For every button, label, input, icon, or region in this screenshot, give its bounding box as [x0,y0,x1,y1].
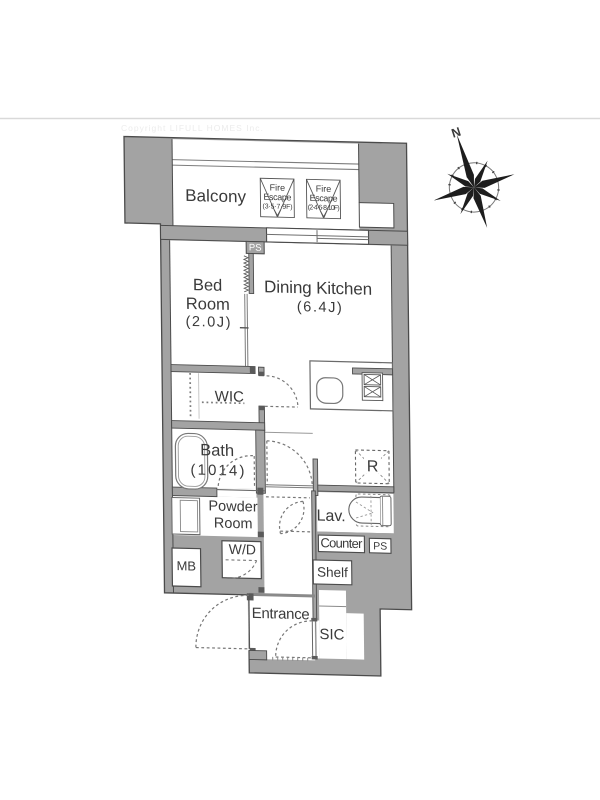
svg-text:Balcony: Balcony [185,186,247,206]
svg-text:(3·5·7·9F): (3·5·7·9F) [263,203,293,211]
svg-text:Room: Room [186,295,230,314]
svg-text:(6.4J): (6.4J) [297,299,342,316]
svg-text:Copyright LIFULL HOMES Inc.: Copyright LIFULL HOMES Inc. [121,123,264,133]
svg-text:N: N [450,125,463,141]
svg-text:MB: MB [176,558,196,573]
svg-text:WIC: WIC [215,388,245,406]
svg-text:Room: Room [214,516,253,533]
svg-text:Dining Kitchen: Dining Kitchen [264,277,372,299]
svg-text:Powder: Powder [208,498,258,515]
svg-text:W/D: W/D [229,541,256,558]
svg-text:(2·4·6·8·10F): (2·4·6·8·10F) [308,204,340,212]
svg-text:R: R [367,458,379,475]
svg-text:SIC: SIC [319,626,344,644]
svg-text:(2.0J): (2.0J) [185,314,230,331]
svg-text:Escape: Escape [263,192,291,203]
svg-text:Lav.: Lav. [317,508,346,526]
svg-text:Shelf: Shelf [317,564,348,580]
svg-text:Bed: Bed [193,276,223,295]
svg-text:Bath: Bath [200,441,234,460]
svg-text:PS: PS [373,540,387,552]
svg-text:Escape: Escape [310,193,338,204]
svg-text:Entrance: Entrance [252,605,310,623]
svg-text:PS: PS [249,242,262,253]
svg-text:Counter: Counter [320,535,363,551]
